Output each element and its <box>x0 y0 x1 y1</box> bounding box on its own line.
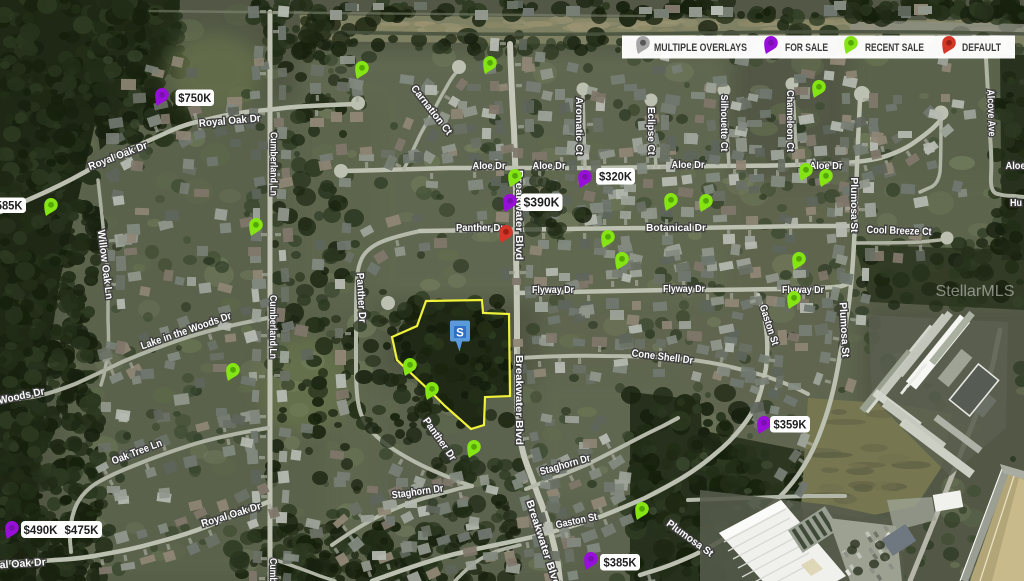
svg-text:S: S <box>456 328 464 340</box>
svg-text:Aloe Dr: Aloe Dr <box>1006 160 1024 172</box>
svg-text:Cumberland Ln: Cumberland Ln <box>267 295 279 359</box>
svg-text:Aloe Dr: Aloe Dr <box>672 159 705 171</box>
svg-text:Aloe Dr: Aloe Dr <box>533 160 566 172</box>
svg-text:Eclipse Ct: Eclipse Ct <box>645 107 657 155</box>
svg-text:$475K: $475K <box>65 523 99 537</box>
svg-text:Cumberland Ln: Cumberland Ln <box>267 558 279 581</box>
svg-text:Flyway Dr: Flyway Dr <box>663 283 705 295</box>
svg-text:$490K: $490K <box>24 523 58 537</box>
svg-text:Flyway Dr: Flyway Dr <box>532 284 574 296</box>
svg-text:$320K: $320K <box>599 169 632 183</box>
svg-text:Hu: Hu <box>1010 197 1022 209</box>
svg-text:$390K: $390K <box>524 194 561 209</box>
svg-text:Breakwater Blvd: Breakwater Blvd <box>513 355 525 445</box>
svg-text:$359K: $359K <box>774 417 807 431</box>
svg-text:Cumberland Ln: Cumberland Ln <box>268 132 280 196</box>
svg-text:DEFAULT: DEFAULT <box>962 42 1001 54</box>
svg-text:Chameleon Ct: Chameleon Ct <box>784 90 796 152</box>
svg-text:$585K: $585K <box>0 198 23 212</box>
svg-text:Panther Dr: Panther Dr <box>456 222 504 234</box>
svg-text:$385K: $385K <box>604 556 637 570</box>
svg-text:RECENT SALE: RECENT SALE <box>865 42 924 54</box>
svg-text:$750K: $750K <box>178 91 211 105</box>
svg-text:Aloe Dr: Aloe Dr <box>473 160 506 172</box>
svg-text:Cool Breeze Ct: Cool Breeze Ct <box>866 224 932 238</box>
svg-text:Alcove Ave: Alcove Ave <box>984 89 998 137</box>
svg-text:Plumosa St: Plumosa St <box>848 178 860 233</box>
svg-text:Silhouette Ct: Silhouette Ct <box>718 95 730 152</box>
svg-text:FOR SALE: FOR SALE <box>785 42 828 54</box>
svg-text:StellarMLS: StellarMLS <box>936 283 1015 300</box>
svg-text:Aromatic Ct: Aromatic Ct <box>573 97 585 155</box>
svg-text:Botanical Dr: Botanical Dr <box>646 222 706 234</box>
svg-text:MULTIPLE OVERLAYS: MULTIPLE OVERLAYS <box>654 42 747 54</box>
